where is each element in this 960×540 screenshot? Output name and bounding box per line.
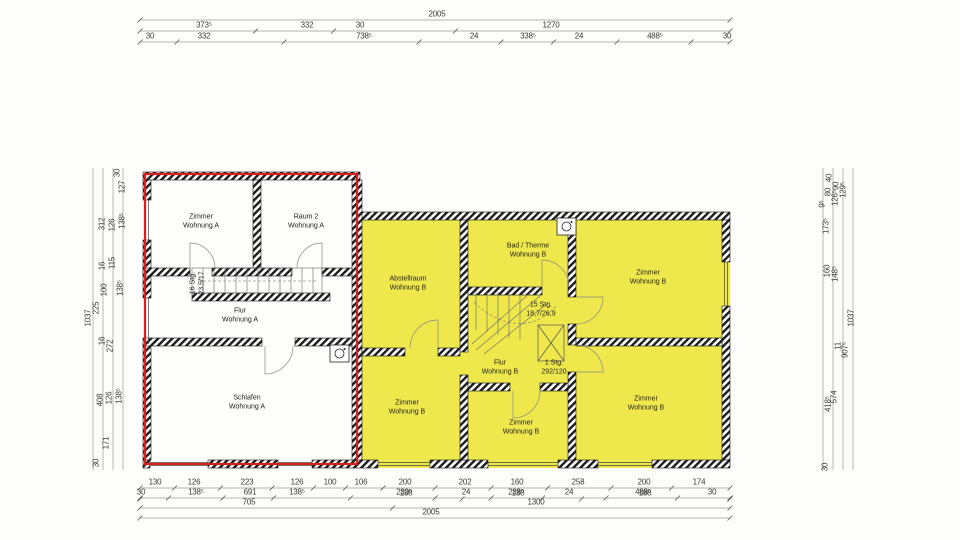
room-label-raum2-wohnung-a: Raum 2Wohnung A bbox=[288, 213, 324, 232]
dimension-label: 138 bbox=[400, 489, 413, 498]
dimension-label: 30 bbox=[708, 488, 717, 497]
dimension-label: 705 bbox=[243, 498, 256, 507]
dimension-label: 907⁵ bbox=[841, 342, 850, 358]
room-label-zimmer-wohnung-b-mitte: ZimmerWohnung B bbox=[503, 419, 539, 438]
dimension-label: 408 bbox=[96, 394, 105, 407]
dimension-label: 16 bbox=[98, 262, 107, 271]
room-label-zimmer-wohnung-a: ZimmerWohnung A bbox=[183, 213, 219, 232]
dimension-label: 138⁵ bbox=[188, 488, 204, 497]
dimension-label: 225 bbox=[92, 302, 101, 315]
dimension-label: 2005 bbox=[423, 508, 440, 517]
dimension-label: 126⁵ bbox=[831, 190, 840, 206]
dimension-label: 126 bbox=[291, 478, 304, 487]
room-label-zimmer-wohnung-b-oben: ZimmerWohnung B bbox=[630, 269, 666, 288]
dimension-label: 138⁵ bbox=[115, 388, 124, 404]
dimension-label: 2005 bbox=[429, 10, 446, 19]
room-label-stufe-beschriftung: 1 Stg.292/120 bbox=[541, 359, 566, 378]
dimension-label: 129⁵ bbox=[839, 182, 848, 198]
room-label-treppe-b-beschriftung: 15 Stg.18,7/26,9 bbox=[526, 301, 555, 320]
room-label-zimmer-wohnung-b-links: ZimmerWohnung B bbox=[389, 399, 425, 418]
room-label-bad-therme-wohnung-b: Bad / ThermeWohnung B bbox=[507, 242, 549, 261]
dimension-label: 188 bbox=[639, 489, 652, 498]
dimension-label: 30 bbox=[821, 463, 830, 472]
dimension-label: 106 bbox=[355, 478, 368, 487]
dimension-label: 1037 bbox=[84, 310, 93, 327]
dimension-label: 30 bbox=[356, 21, 365, 30]
dimension-label: 1300 bbox=[528, 498, 545, 507]
floor-plan-drawing bbox=[0, 0, 960, 540]
dimension-label: 100 bbox=[100, 284, 109, 297]
dimension-label: 30 bbox=[92, 459, 101, 468]
dimension-label: 30 bbox=[113, 169, 122, 178]
dimension-label: 126 bbox=[105, 392, 114, 405]
dimension-label: 1037 bbox=[847, 310, 856, 327]
dimension-label: 127 bbox=[118, 181, 127, 194]
dimension-label: 24 bbox=[565, 488, 574, 497]
dimension-label: 691 bbox=[244, 488, 257, 497]
dimension-label: 200 bbox=[399, 478, 412, 487]
dimension-label: 30 bbox=[146, 32, 155, 41]
dimension-label: 30 bbox=[137, 488, 146, 497]
dimension-label: 138 bbox=[512, 489, 525, 498]
dimension-label: 171 bbox=[102, 437, 111, 450]
room-label-zimmer-wohnung-b-rechts: ZimmerWohnung B bbox=[628, 395, 664, 414]
room-label-flur-wohnung-a: FlurWohnung A bbox=[222, 307, 258, 326]
dimension-label: 1270 bbox=[543, 21, 560, 30]
dimension-label: 130 bbox=[149, 478, 162, 487]
dimension-label: 30 bbox=[723, 32, 732, 41]
dimension-label: 126 bbox=[188, 478, 201, 487]
dimension-label: 148⁵ bbox=[831, 266, 840, 282]
dimension-label: 418⁵ bbox=[824, 396, 833, 412]
floor-plan-page: ZimmerWohnung ARaum 2Wohnung AFlurWohnun… bbox=[0, 0, 960, 540]
dimension-label: 373⁵ bbox=[196, 21, 212, 30]
dimension-label: 24 bbox=[462, 488, 471, 497]
dimension-label: 24 bbox=[575, 32, 584, 41]
dimension-label: 223 bbox=[241, 478, 254, 487]
dimension-label: 312 bbox=[98, 218, 107, 231]
dimension-label: 332 bbox=[198, 32, 211, 41]
room-label-schlafen-wohnung-a: SchlafenWohnung A bbox=[229, 394, 265, 413]
room-label-treppe-a-beschriftung: 16 Stg.23,5/17 bbox=[189, 271, 208, 294]
dimension-label: 138⁵ bbox=[116, 280, 125, 296]
dimension-label: 173⁵ bbox=[822, 218, 831, 234]
dimension-label: 126 bbox=[108, 219, 117, 232]
dimension-label: 160 bbox=[511, 478, 524, 487]
dimension-label: 9⁵ bbox=[818, 200, 827, 207]
dimension-label: 138⁵ bbox=[289, 488, 305, 497]
dimension-label: 24 bbox=[470, 32, 479, 41]
dimension-label: 138⁵ bbox=[118, 213, 127, 229]
dimension-label: 332 bbox=[301, 21, 314, 30]
dimension-label: 272 bbox=[106, 340, 115, 353]
dimension-label: 338⁵ bbox=[520, 32, 536, 41]
room-label-flur-wohnung-b: FlurWohnung B bbox=[482, 359, 518, 378]
dimension-label: 100 bbox=[324, 478, 337, 487]
dimension-label: 115 bbox=[108, 257, 117, 269]
dimension-label: 202 bbox=[459, 478, 472, 487]
dimension-label: 488⁵ bbox=[647, 32, 663, 41]
dimension-label: 738⁵ bbox=[356, 32, 372, 41]
dimension-label: 258 bbox=[572, 478, 585, 487]
room-label-abstellraum-wohnung-b: AbstellraumWohnung B bbox=[390, 275, 427, 294]
dimension-label: 200 bbox=[638, 478, 651, 487]
dimension-label: 174 bbox=[693, 478, 706, 487]
